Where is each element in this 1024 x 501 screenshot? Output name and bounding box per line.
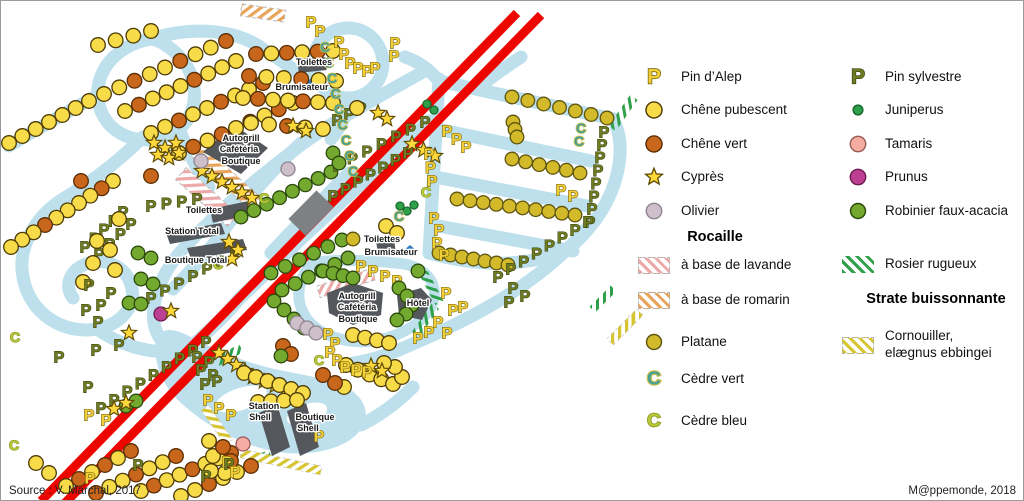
symbol-pin-sylvestre: P [93,315,104,332]
symbol-platane [521,94,535,108]
symbol-pin-alep: P [424,325,435,342]
legend-item-rocaille-lavande: à base de lavande [637,250,791,280]
legend-item-label: Tamaris [885,136,932,153]
symbol-robinier [311,172,325,186]
legend-item-cornouiller: Cornouiller, elægnus ebbingei [841,330,992,360]
symbol-pin-sylvestre: P [114,338,125,355]
symbol-pin-sylvestre: P [54,350,65,367]
symbol-pin-alep: P [340,360,351,377]
symbol-robinier [131,246,145,260]
map-label: Boutique Total [165,255,227,265]
symbol-pin-alep: P [568,189,579,206]
symbol-pin-sylvestre: P [188,269,199,286]
legend-heading: Rocaille [641,229,789,245]
symbol-chene-pubescent [86,256,101,271]
map-label: Boutique [222,156,261,166]
symbol-chene-vert [144,169,159,184]
symbol-pin-sylvestre: P [391,129,402,146]
symbol-chene-pubescent [266,92,281,107]
symbol-platane [510,130,524,144]
symbol-pin-alep: P [203,393,214,410]
symbol-pin-alep: P [439,248,450,265]
symbol-platane [505,152,519,166]
symbol-pin-sylvestre: P [378,160,389,177]
symbol-cedre-vert: C [348,163,358,179]
symbol-chene-pubescent [108,33,123,48]
symbol-platane [569,104,583,118]
legend-item-pin-sylvestre: PPin sylvestre [841,62,962,92]
symbol-chene-pubescent [144,24,159,39]
symbol-pin-sylvestre: P [161,196,172,213]
legend-item-label: Juniperus [885,102,944,119]
symbol-chene-vert [328,376,343,391]
legend-item-tamaris: Tamaris [841,129,932,159]
symbol-platane [529,203,543,217]
chene-pubescent-icon [637,95,671,125]
symbol-chene-pubescent [236,91,251,106]
rocaille-romarin-bed-top [240,4,285,22]
symbol-pin-sylvestre: P [362,144,373,161]
symbol-chene-pubescent [112,212,127,227]
symbol-chene-vert [98,458,113,473]
map-label: Hôtel [407,298,430,308]
symbol-platane [516,201,530,215]
symbol-chene-pubescent [2,136,17,151]
symbol-robinier [286,184,300,198]
symbol-chene-pubescent [112,80,127,95]
symbol-chene-vert [214,94,229,109]
symbol-pin-sylvestre: P [84,278,95,295]
symbol-chene-vert [244,459,259,474]
symbol-chene-pubescent [158,119,173,134]
symbol-pin-alep: P [458,300,469,317]
symbol-robinier [274,349,288,363]
map-label: Boutique [339,314,378,324]
olivier-icon [637,196,671,226]
symbol-chene-pubescent [316,122,331,137]
symbol-chene-pubescent [215,60,230,75]
legend-item-prunus: Prunus [841,162,928,192]
symbol-pin-sylvestre: P [126,217,137,234]
symbol-platane [573,166,587,180]
symbol-pin-sylvestre: P [583,215,594,232]
symbol-pin-sylvestre: P [518,254,529,271]
map-label: Brumisateur [275,82,329,92]
symbol-chene-pubescent [142,461,157,476]
symbol-cedre-bleu: C [259,190,269,206]
symbol-chene-vert [296,94,311,109]
symbol-pin-sylvestre: P [544,238,555,255]
legend-item-label: Pin d’Alep [681,69,742,86]
cedre-vert-icon: C [637,364,671,394]
symbol-chene-pubescent [55,108,70,123]
symbol-platane [600,111,614,125]
symbol-pin-sylvestre: P [390,153,401,170]
symbol-chene-vert [242,69,257,84]
tamaris-icon [841,129,875,159]
symbol-olivier [281,162,295,176]
cornouiller-icon [841,330,875,360]
symbol-tamaris [236,437,250,451]
symbol-chene-vert [186,139,201,154]
symbol-chene-pubescent [173,79,188,94]
symbol-cedre-vert: C [341,132,351,148]
svg-text:C: C [647,411,661,432]
symbol-pin-sylvestre: P [148,368,159,385]
platane-icon [637,327,671,357]
symbol-robinier [288,277,302,291]
prunus-icon [841,162,875,192]
symbol-pin-sylvestre: P [570,222,581,239]
legend-item-label: Platane [681,334,727,351]
symbol-chene-vert [251,92,266,107]
symbol-chene-vert [132,97,147,112]
symbol-pin-alep: P [214,401,225,418]
svg-text:P: P [647,66,661,89]
symbol-robinier [278,260,292,274]
symbol-pin-alep: P [351,363,362,380]
symbol-chene-pubescent [203,40,218,55]
symbol-chene-vert [172,113,187,128]
symbol-cedre-bleu: C [314,352,324,368]
cypres-icon [637,162,671,192]
legend-item-label: Olivier [681,203,719,220]
legend-item-label: à base de romarin [681,292,790,309]
symbol-pin-sylvestre: P [83,380,94,397]
symbol-chene-vert [173,54,188,69]
symbol-chene-pubescent [155,455,170,470]
symbol-pin-alep: P [356,259,367,276]
symbol-pin-sylvestre: P [420,115,431,132]
symbol-pin-alep: P [84,408,95,425]
symbol-chene-pubescent [103,243,118,258]
symbol-chene-vert [127,73,142,88]
legend-item-label: Pin sylvestre [885,69,962,86]
symbol-chene-vert [280,46,295,61]
symbol-chene-pubescent [97,87,112,102]
pin-sylvestre-icon: P [841,62,875,92]
symbol-chene-pubescent [290,393,305,408]
symbol-chene-vert [216,440,231,455]
symbol-platane [476,196,490,210]
map-label: Cafétéria [220,144,260,154]
symbol-juniperus [430,106,438,114]
legend-item-label: Chêne pubescent [681,102,787,119]
map-label: Autogrill [223,133,260,143]
symbol-platane [568,208,582,222]
symbol-chene-pubescent [144,126,159,141]
symbol-pin-sylvestre: P [531,246,542,263]
symbol-pin-sylvestre: P [133,458,144,475]
symbol-chene-pubescent [186,107,201,122]
symbol-robinier [302,270,316,284]
legend-item-label: Cyprès [681,169,724,186]
symbol-chene-pubescent [382,336,397,351]
symbol-chene-pubescent [90,234,105,249]
symbol-pin-alep: P [380,269,391,286]
legend-item-label: Robinier faux-acacia [885,203,1008,220]
symbol-platane [560,163,574,177]
symbol-chene-vert [74,174,89,189]
symbol-chene-pubescent [145,91,160,106]
symbol-pin-alep: P [101,413,112,430]
symbol-cedre-bleu: C [10,329,20,345]
symbol-pin-sylvestre: P [506,262,517,279]
legend-item-robinier: Robinier faux-acacia [841,196,1008,226]
map-figure: PPPPPPPPPPPPPPPPPPPPPPPPPPPPPPPPPPPPPPPP… [0,0,1024,501]
symbol-pin-sylvestre: P [161,359,172,376]
symbol-pin-alep: P [315,24,326,41]
symbol-platane [584,108,598,122]
symbol-robinier [273,191,287,205]
symbol-robinier [134,297,148,311]
symbol-pin-sylvestre: P [328,189,339,206]
symbol-pin-sylvestre: P [174,351,185,368]
symbol-cedre-bleu: C [421,184,431,200]
map-label: Toilettes [186,205,222,215]
symbol-juniperus [403,207,411,215]
symbol-platane [519,155,533,169]
symbol-pin-sylvestre: P [365,167,376,184]
symbol-robinier [332,156,346,170]
symbol-robinier [411,264,425,278]
symbol-robinier [293,253,307,267]
symbol-pin-sylvestre: P [106,286,117,303]
symbol-chene-pubescent [29,456,44,471]
source-credit: Source : V. Marchal, 2017 [9,485,141,497]
symbol-platane [553,101,567,115]
legend-heading: Strate buissonnante [846,291,1024,307]
symbol-robinier [307,246,321,260]
symbol-chene-pubescent [118,104,133,119]
symbol-pin-alep: P [389,49,400,66]
legend-item-olivier: Olivier [637,196,719,226]
symbol-pin-sylvestre: P [504,295,515,312]
map-label: Cafétéria [338,302,378,312]
chene-vert-icon [637,129,671,159]
legend-item-label: Cèdre bleu [681,413,747,430]
symbol-pin-sylvestre: P [200,377,211,394]
symbol-cedre-vert: C [574,133,584,149]
map-label: Station [249,401,280,411]
symbol-chene-pubescent [262,117,277,132]
symbol-cedre-vert: C [330,86,340,102]
map-label: Boutique [296,412,335,422]
symbol-cedre-bleu: C [9,437,19,453]
publisher-credit: M@ppemonde, 2018 [908,485,1016,497]
symbol-robinier [298,178,312,192]
map-label: Autogrill [339,291,376,301]
map-label: Shell [297,423,319,433]
legend-item-rosier-rugueux: Rosier rugueux [841,249,977,279]
symbol-chene-pubescent [201,66,216,81]
symbol-chene-pubescent [42,115,57,130]
map-label: Shell [249,412,271,422]
symbol-chene-pubescent [158,60,173,75]
symbol-chene-vert [187,72,202,87]
symbol-pin-sylvestre: P [493,270,504,287]
legend-item-chene-pubescent: Chêne pubescent [637,95,787,125]
symbol-pin-sylvestre: P [340,181,351,198]
symbol-chene-pubescent [28,122,43,137]
legend-item-label: Cèdre vert [681,371,744,388]
symbol-chene-pubescent [281,93,296,108]
symbol-platane [537,97,551,111]
legend-item-chene-vert: Chêne vert [637,129,747,159]
legend-item-rocaille-romarin: à base de romarin [637,285,790,315]
robinier-icon [841,196,875,226]
symbol-robinier [321,240,335,254]
symbol-chene-pubescent [68,101,83,116]
symbol-chene-pubescent [350,101,365,116]
symbol-pin-alep: P [362,365,373,382]
symbol-juniperus [410,201,418,209]
legend-item-label: Chêne vert [681,136,747,153]
symbol-pin-alep: P [556,183,567,200]
symbol-juniperus [423,100,431,108]
symbol-pin-alep: P [441,286,452,303]
legend-item-cedre-bleu: CCèdre bleu [637,406,747,436]
symbol-cedre-vert: C [320,39,330,55]
symbol-platane [490,198,504,212]
symbol-pin-sylvestre: P [520,289,531,306]
symbol-platane [505,90,519,104]
legend-item-pin-alep: PPin d’Alep [637,62,742,92]
symbol-robinier [234,210,248,224]
symbol-chene-pubescent [229,54,244,69]
symbol-chene-pubescent [142,67,157,82]
symbol-chene-pubescent [264,46,279,61]
symbol-pin-sylvestre: P [96,298,107,315]
symbol-chene-pubescent [15,129,30,144]
symbol-olivier [309,326,323,340]
symbol-chene-vert [249,47,264,62]
symbol-platane [542,205,556,219]
symbol-chene-pubescent [111,451,126,466]
symbol-pin-sylvestre: P [115,227,126,244]
symbol-chene-pubescent [4,240,19,255]
pin-alep-icon: P [637,62,671,92]
symbol-pin-alep: P [413,331,424,348]
symbol-pin-sylvestre: P [201,469,212,486]
symbol-platane [503,199,517,213]
legend-item-platane: Platane [637,327,727,357]
legend-item-cedre-vert: CCèdre vert [637,364,744,394]
symbol-pin-sylvestre: P [405,122,416,139]
road-shell-exit [361,387,413,425]
legend-item-label: Prunus [885,169,928,186]
svg-text:P: P [851,66,865,89]
symbol-chene-pubescent [202,434,217,449]
symbol-chene-pubescent [126,28,141,43]
symbol-platane [532,158,546,172]
symbol-robinier [146,277,160,291]
symbol-pin-sylvestre: P [376,137,387,154]
symbol-pin-sylvestre: P [81,303,92,320]
symbol-pin-alep: P [442,326,453,343]
symbol-chene-pubescent [42,466,57,481]
symbol-chene-pubescent [244,116,259,131]
legend-item-label: à base de lavande [681,257,791,274]
legend-item-juniperus: Juniperus [841,95,944,125]
map-label: Toilettes [296,57,332,67]
map-label: Station Total [165,226,219,236]
symbol-pin-sylvestre: P [174,276,185,293]
symbol-chene-pubescent [108,263,123,278]
symbol-chene-pubescent [200,133,215,148]
symbol-pin-sylvestre: P [224,457,235,474]
symbol-pin-sylvestre: P [135,376,146,393]
symbol-robinier [341,251,355,265]
rocaille-lavande-icon [637,250,671,280]
rocaille-romarin-icon [637,285,671,315]
symbol-chene-pubescent [188,47,203,62]
rosier-rugueux-icon [841,249,875,279]
symbol-olivier [194,154,208,168]
symbol-chene-pubescent [311,95,326,110]
symbol-platane [463,194,477,208]
symbol-chene-vert [219,34,234,49]
symbol-pin-alep: P [461,140,472,157]
symbol-chene-vert [169,449,184,464]
rosier-bed-east-2 [590,286,617,313]
symbol-platane [450,192,464,206]
symbol-pin-alep: P [370,61,381,78]
symbol-platane [346,232,360,246]
symbol-chene-pubescent [82,94,97,109]
legend-item-cypres: Cyprès [637,162,724,192]
symbol-chene-pubescent [259,70,274,85]
juniperus-icon [841,95,875,125]
symbol-cedre-vert: C [337,117,347,133]
symbol-chene-pubescent [159,85,174,100]
symbol-chene-pubescent [174,489,189,500]
symbol-chene-vert [124,444,139,459]
symbol-cedre-vert: C [394,208,404,224]
symbol-pin-sylvestre: P [146,199,157,216]
map-label: Toilettes [364,234,400,244]
symbol-robinier [390,313,404,327]
symbol-platane [555,206,569,220]
symbol-cedre-vert: C [334,101,344,117]
symbol-pin-sylvestre: P [212,374,223,391]
symbol-pin-alep: P [226,408,237,425]
symbol-chene-pubescent [91,38,106,53]
symbol-robinier [144,251,158,265]
map-label: Brumisateur [364,247,418,257]
svg-text:C: C [647,369,661,390]
symbol-pin-sylvestre: P [91,343,102,360]
symbol-platane [546,161,560,175]
symbol-robinier [264,266,278,280]
symbol-pin-sylvestre: P [557,230,568,247]
symbol-pin-alep: P [368,264,379,281]
cedre-bleu-icon: C [637,406,671,436]
symbol-chene-pubescent [200,101,215,116]
legend-item-label: Rosier rugueux [885,256,977,273]
legend-item-label: Cornouiller, elægnus ebbingei [885,328,992,362]
symbol-pin-sylvestre: P [160,283,171,300]
